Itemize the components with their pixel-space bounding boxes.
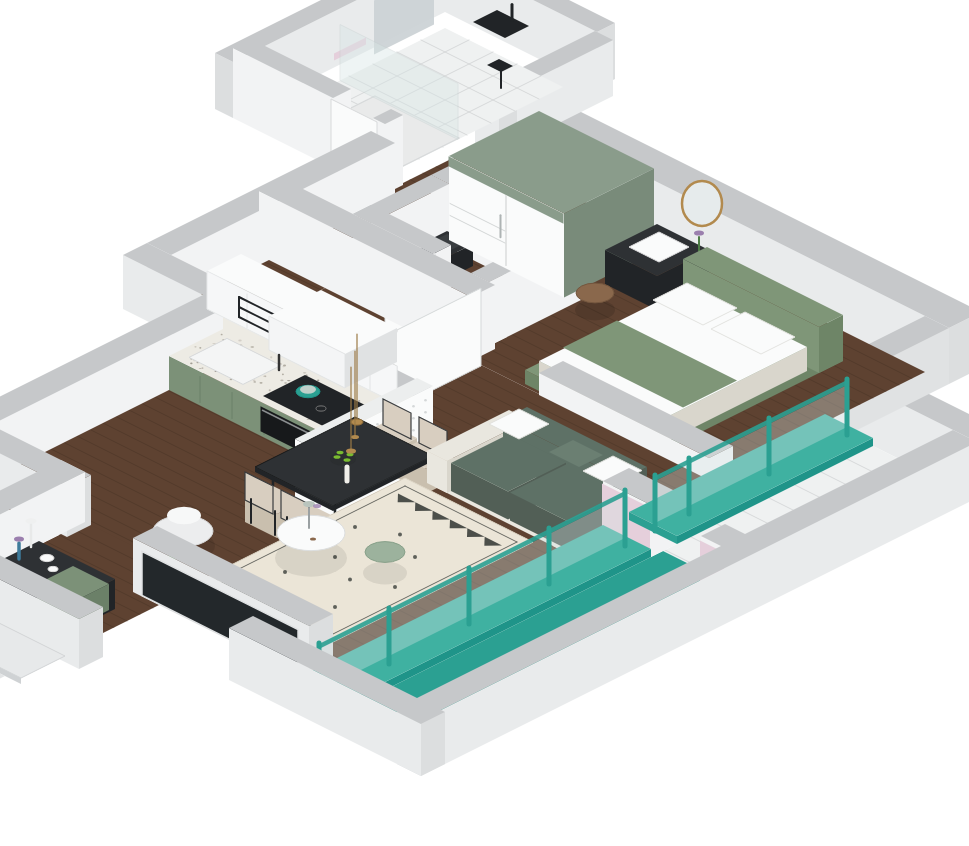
terrazzo-speckle (201, 367, 203, 369)
terrazzo-speckle (254, 381, 256, 382)
terrazzo-speckle (317, 379, 319, 381)
lavender-flowers (694, 230, 704, 235)
round-mirror (682, 181, 722, 226)
rug-dots (333, 605, 337, 609)
coffee-cup (310, 537, 316, 540)
terrazzo-speckle (264, 376, 266, 378)
rug-dots (353, 525, 357, 529)
pegboard-holes (424, 399, 427, 402)
teal-pot-lid (300, 385, 316, 393)
terrazzo-speckle (358, 400, 360, 402)
floorplan-render (0, 0, 969, 846)
terrazzo-speckle (194, 346, 196, 347)
rug-dots (398, 533, 402, 537)
green-apple (334, 455, 341, 459)
coffee-table-white (277, 515, 345, 550)
rug-dots (413, 555, 417, 559)
rug-dots (393, 585, 397, 589)
pegboard-holes (376, 423, 379, 426)
terrazzo-speckle (238, 340, 241, 342)
terrazzo-speckle (269, 389, 271, 391)
pendant-lamp (351, 435, 359, 439)
console-plate (48, 566, 58, 571)
pegboard-holes (424, 411, 427, 414)
dried-flowers (313, 504, 321, 508)
terrazzo-speckle (280, 379, 283, 381)
terrazzo-speckle (303, 372, 307, 373)
terrazzo-speckle (270, 356, 272, 358)
side-table-green (365, 542, 405, 563)
outer-wall-bath-left (215, 53, 233, 118)
rattan-pouf (576, 283, 614, 303)
terrazzo-speckle (199, 347, 201, 349)
terrazzo-speckle (199, 368, 202, 369)
pegboard-holes (412, 405, 415, 408)
terrazzo-speckle (282, 366, 284, 367)
pegboard-holes (412, 429, 415, 432)
terrazzo-speckle (260, 382, 263, 384)
pendant-lamp (351, 419, 363, 425)
side-table-shadow (363, 562, 407, 585)
pendant-lamp (346, 448, 356, 453)
terrazzo-speckle (250, 346, 254, 348)
rug-dots (348, 578, 352, 582)
terrazzo-speckle (284, 382, 287, 383)
beanbag-top (167, 507, 201, 525)
terrazzo-speckle (190, 362, 192, 364)
terrazzo-speckle (282, 374, 284, 376)
console-plate (40, 554, 54, 561)
green-apple (344, 458, 351, 462)
pegboard-holes (412, 417, 415, 420)
green-apple (337, 451, 344, 455)
terrazzo-speckle (221, 334, 223, 336)
terrazzo-speckle (287, 380, 291, 381)
console-flowers (14, 536, 24, 541)
console-lamp-shade (26, 518, 37, 524)
floorplan-stage (0, 0, 969, 846)
